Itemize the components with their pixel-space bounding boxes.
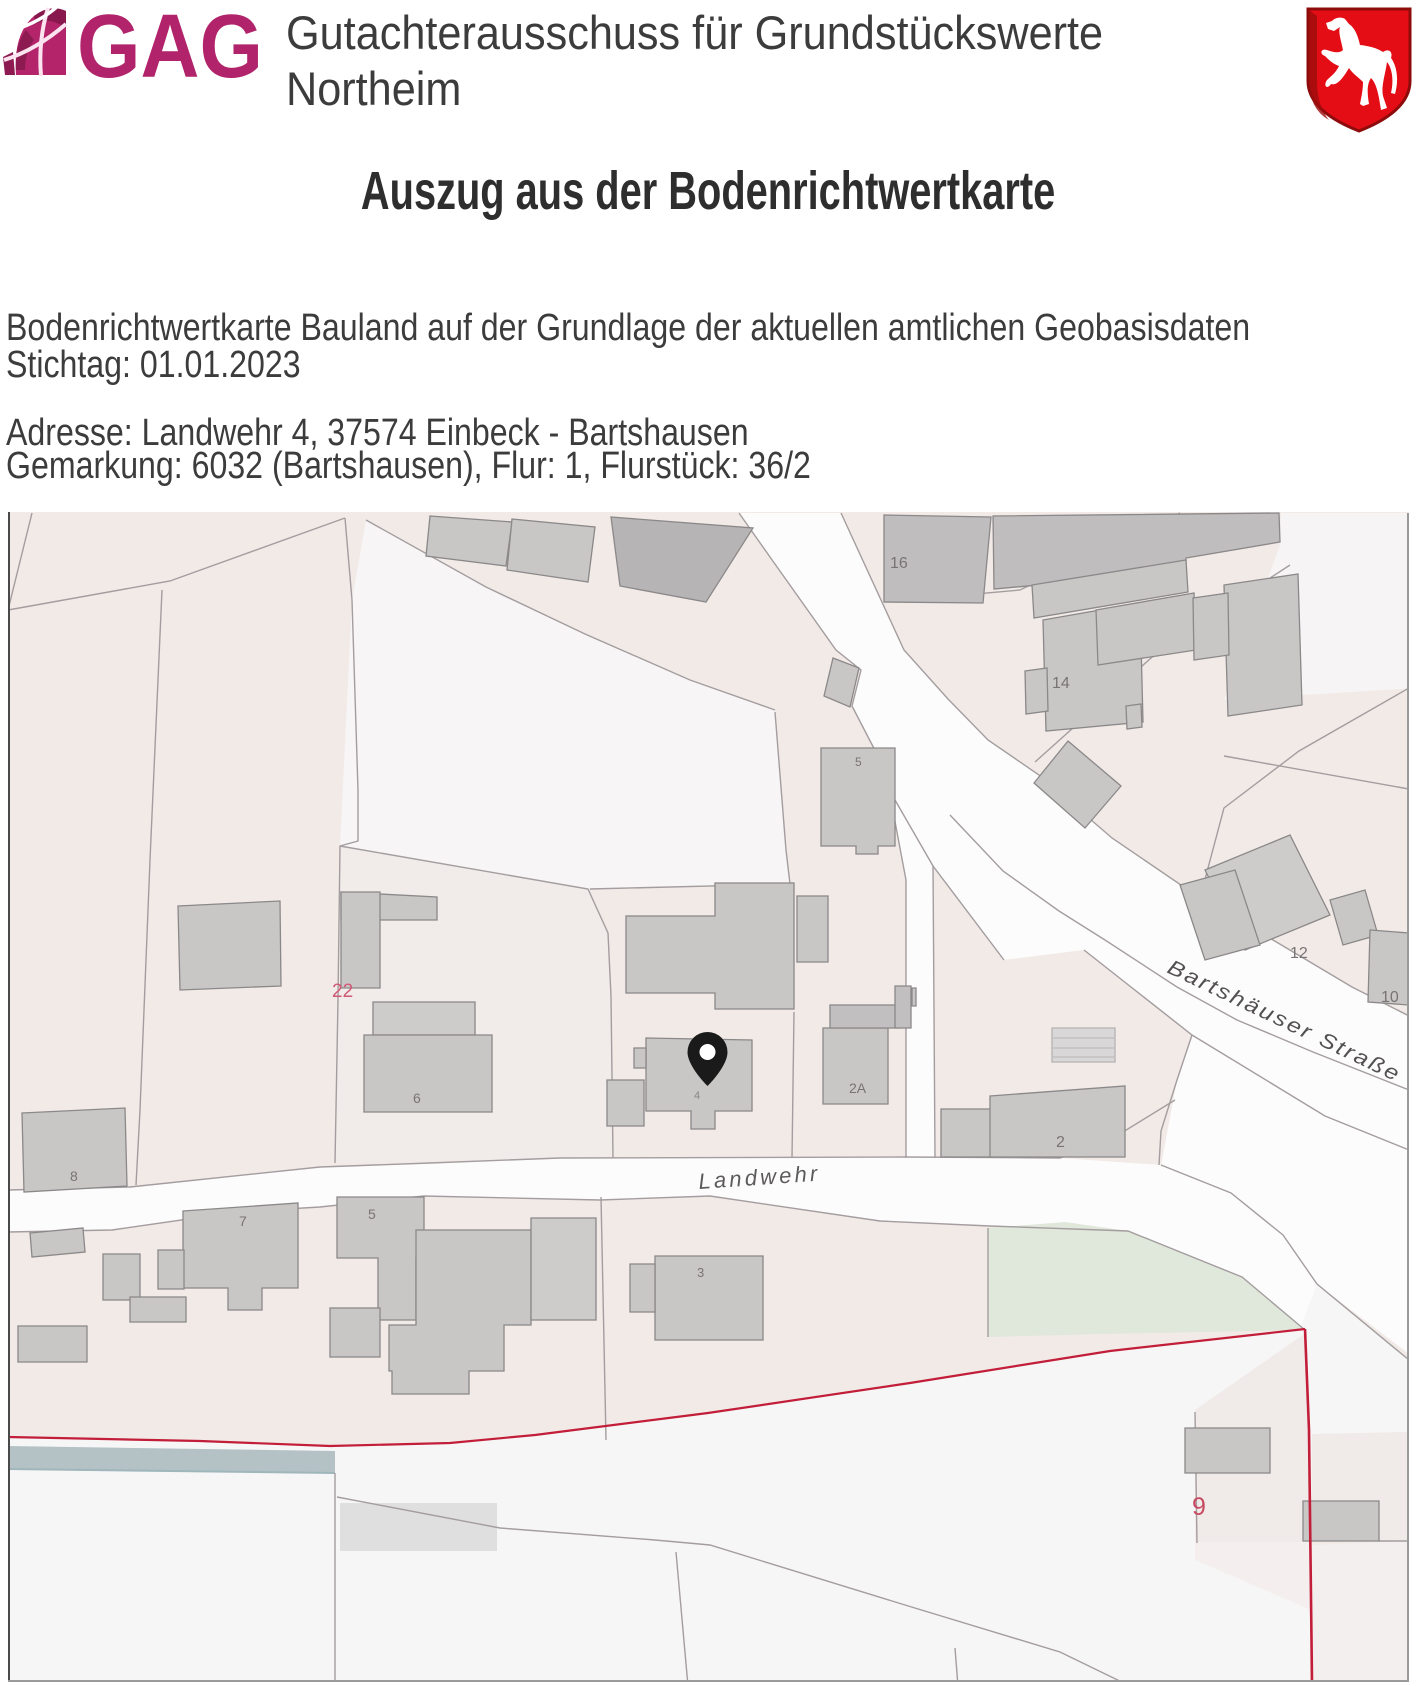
svg-text:5: 5 xyxy=(368,1206,376,1222)
svg-text:9: 9 xyxy=(1192,1493,1206,1521)
svg-text:10: 10 xyxy=(1381,989,1399,1006)
svg-text:12: 12 xyxy=(1290,945,1308,962)
svg-text:22: 22 xyxy=(332,981,353,1002)
svg-text:14: 14 xyxy=(1052,675,1070,692)
svg-text:7: 7 xyxy=(239,1213,247,1229)
svg-text:8: 8 xyxy=(70,1168,78,1184)
svg-text:16: 16 xyxy=(890,555,908,572)
svg-text:2A: 2A xyxy=(849,1080,867,1096)
svg-text:6: 6 xyxy=(413,1090,421,1106)
svg-text:2: 2 xyxy=(1056,1134,1065,1151)
svg-text:5: 5 xyxy=(855,755,862,769)
svg-text:4: 4 xyxy=(694,1090,700,1102)
svg-text:3: 3 xyxy=(697,1265,704,1280)
